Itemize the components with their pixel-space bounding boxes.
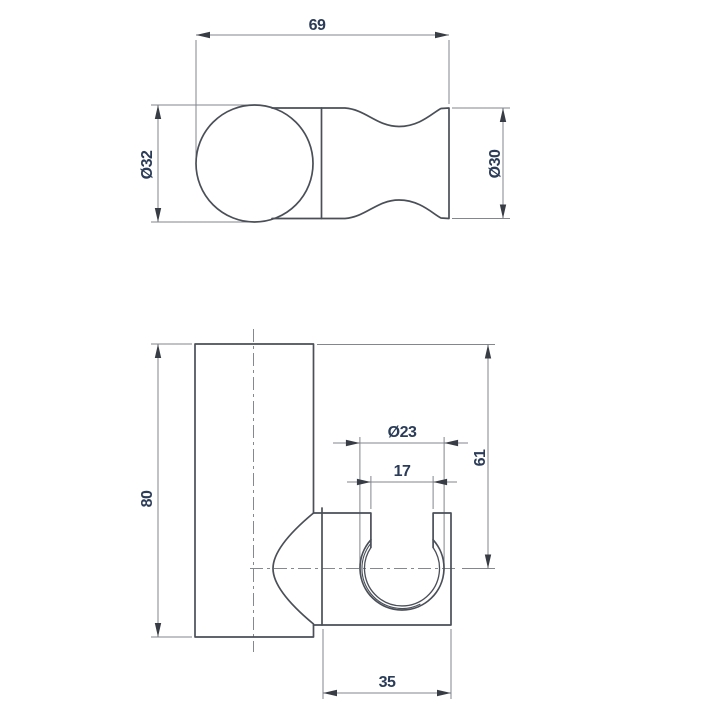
dim-label-overall-length: 69 [309,17,326,34]
arrowhead-right [444,440,458,446]
arrowhead-left [323,690,337,696]
cradle-outer-arc [360,540,444,610]
wall-plate-outline [195,344,314,637]
top-view: 69 Ø32 Ø30 [139,17,510,222]
knob-circle-outline [196,105,313,222]
dim-body-width: 35 [323,629,451,699]
arrowhead-right [435,32,449,38]
dim-overall-length: 69 [196,17,449,160]
dim-label-knob-diameter: Ø32 [139,150,156,179]
dim-cradle-center-offset: 61 [317,345,495,569]
arrowhead-left [357,479,371,485]
drawing-page: 69 Ø32 Ø30 [0,0,720,720]
arrowhead-left [346,440,360,446]
dim-label-opening-width: 17 [394,463,411,480]
dim-opening-width: 17 [347,463,457,509]
arrowhead-right [437,690,451,696]
dim-channel-diameter: Ø23 [333,424,468,568]
arrowhead-bottom [485,555,491,569]
arrowhead-top [500,108,506,122]
cradle-middle-arc [362,544,420,609]
dim-label-body-width: 35 [379,674,396,691]
technical-drawing: 69 Ø32 Ø30 [0,0,720,720]
dim-label-cradle-diameter: Ø30 [487,149,504,178]
dim-label-cradle-center-offset: 61 [472,449,489,466]
arrowhead-right [433,479,447,485]
dim-plate-height: 80 [139,344,192,637]
arrowhead-bottom [155,208,161,222]
dim-label-plate-height: 80 [139,490,156,507]
arrowhead-top [155,344,161,358]
arrowhead-left [196,32,210,38]
arrowhead-top [155,105,161,119]
cradle-inner-arc [365,548,440,606]
arrowhead-bottom [500,205,506,219]
dim-cradle-diameter: Ø30 [452,108,510,219]
front-view: 80 61 Ø23 17 [139,329,495,699]
arrowhead-bottom [155,623,161,637]
arrowhead-top [485,345,491,359]
dim-label-channel-diameter: Ø23 [388,424,417,441]
